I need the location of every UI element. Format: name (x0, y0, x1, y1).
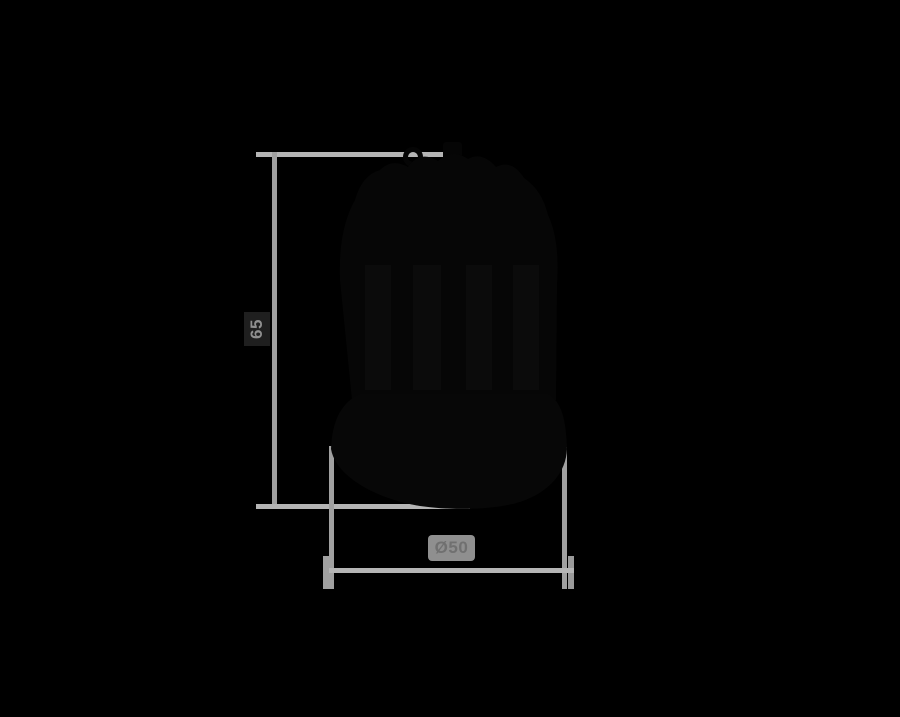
diameter-left-end-cap (323, 556, 329, 589)
rib-slot (513, 265, 539, 390)
diameter-dimension-label: Ø50 (428, 535, 475, 561)
height-dimension-line (272, 152, 277, 509)
height-top-extension-line (256, 152, 460, 157)
rib-slot (466, 265, 492, 390)
rib-slot (413, 265, 441, 390)
dimension-drawing-svg (0, 0, 900, 717)
product-silhouette (331, 142, 567, 509)
bottom-dome (331, 394, 567, 509)
diameter-dimension-value: Ø50 (435, 538, 469, 558)
height-dimension-label: 65 (244, 312, 270, 346)
height-dimension-value: 65 (247, 319, 267, 339)
rib-slot (365, 265, 391, 390)
diameter-right-extension-line (562, 447, 567, 589)
diagram-canvas: 65 Ø50 (0, 0, 900, 717)
diameter-left-extension-line (329, 446, 334, 589)
diameter-dimension-line (329, 568, 574, 573)
